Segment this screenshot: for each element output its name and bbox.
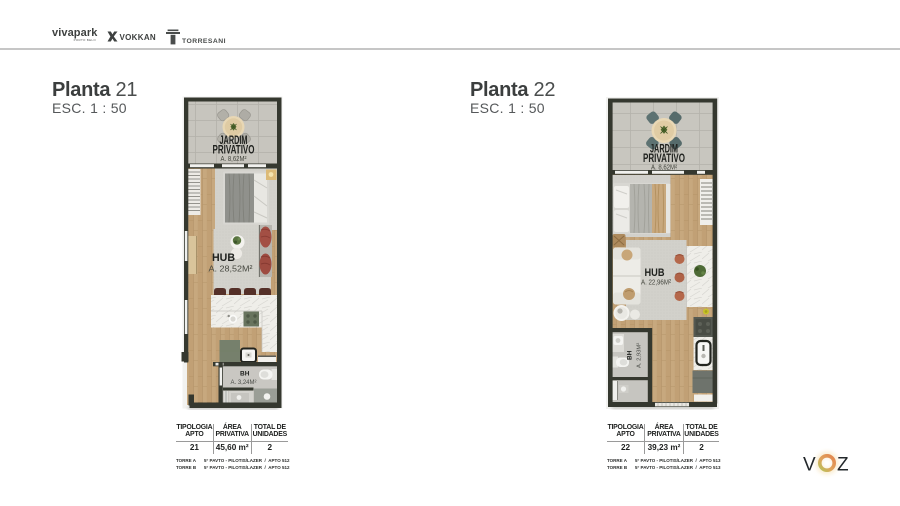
svg-text:BH: BH <box>627 350 634 360</box>
svg-text:Z: Z <box>837 455 849 476</box>
svg-text:A. 22,96M²: A. 22,96M² <box>641 278 671 287</box>
svg-text:A. 28,52M²: A. 28,52M² <box>209 264 253 274</box>
svg-text:HUB: HUB <box>212 252 235 264</box>
svg-text:BH: BH <box>240 371 250 378</box>
svg-text:PRIVATIVO: PRIVATIVO <box>213 145 255 157</box>
svg-text:PRIVATIVO: PRIVATIVO <box>643 153 685 165</box>
svg-text:TORRESANI: TORRESANI <box>182 38 226 45</box>
svg-text:A. 8,62M²: A. 8,62M² <box>221 156 248 163</box>
svg-text:A. 3,24M²: A. 3,24M² <box>231 380 257 386</box>
svg-text:VOKKAN: VOKKAN <box>120 33 156 42</box>
svg-text:V: V <box>803 455 816 476</box>
svg-text:A. 2,93M²: A. 2,93M² <box>637 343 643 368</box>
